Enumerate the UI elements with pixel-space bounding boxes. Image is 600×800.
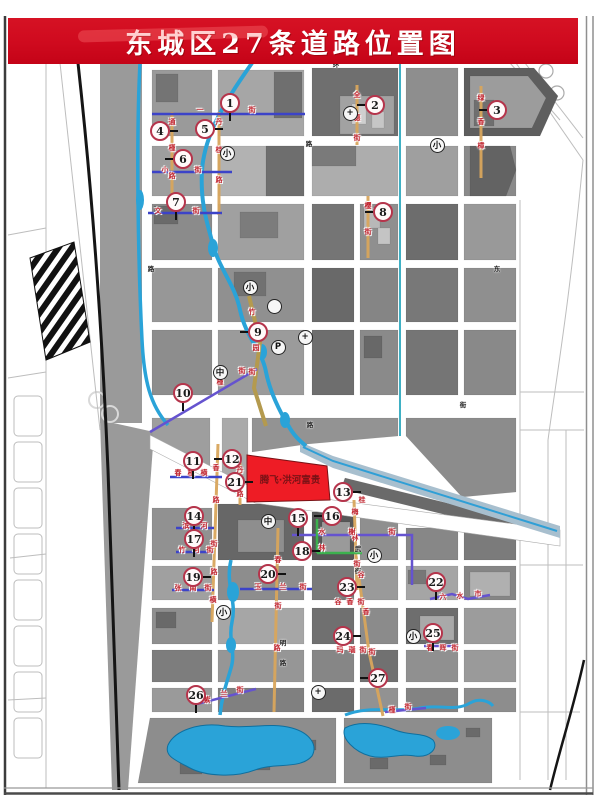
road-name-mark: 街: [365, 227, 372, 237]
marker-tick-4: [170, 130, 178, 132]
road-name-mark: 香: [347, 597, 354, 607]
road-name-mark: 路: [216, 175, 223, 185]
road-name-mark: 梅: [352, 507, 359, 517]
road-name-mark: 园: [253, 343, 260, 353]
road-name-mark: 街: [369, 647, 376, 657]
road-marker-15: 15: [288, 508, 308, 528]
road-name-mark: 路: [211, 567, 218, 577]
road-marker-1: 1: [220, 93, 240, 113]
road-name-mark: 兰: [221, 689, 228, 699]
marker-tick-1: [229, 113, 231, 121]
middle-school-icon: 中: [213, 365, 228, 380]
road-name-mark: 横: [210, 595, 217, 605]
primary-school-icon: 小: [367, 548, 382, 563]
road-name-mark: 张: [175, 583, 182, 593]
hospital-icon: +: [298, 330, 313, 345]
road-name-mark: 街: [249, 367, 256, 377]
road-name-mark: 街: [249, 105, 256, 115]
road-marker-22: 22: [426, 572, 446, 592]
primary-school-icon: 小: [406, 629, 421, 644]
road-name-mark: 香: [363, 607, 370, 617]
middle-school-icon: 中: [261, 514, 276, 529]
road-name-mark: 谷: [358, 570, 365, 580]
road-name-mark: 街: [237, 685, 244, 695]
road-name-mark-black: 路: [280, 657, 287, 667]
road-marker-21: 21: [225, 472, 245, 492]
road-name-mark: 街: [405, 702, 412, 712]
road-marker-10: 10: [173, 383, 193, 403]
road-marker-26: 26: [186, 685, 206, 705]
road-name-mark: 路: [213, 495, 220, 505]
marker-tick-19: [203, 576, 211, 578]
primary-school-icon: 小: [430, 138, 445, 153]
road-name-mark: 一: [197, 105, 204, 115]
road-name-mark: 路: [169, 171, 176, 181]
road-name-mark: 街: [389, 527, 396, 537]
road-name-mark: 春: [275, 555, 282, 565]
road-marker-5: 5: [195, 119, 215, 139]
primary-school-icon: 小: [220, 146, 235, 161]
hospital-icon: +: [311, 685, 326, 700]
road-name-mark: 街: [193, 206, 200, 216]
road-name-mark-black: 路: [307, 419, 314, 429]
marker-tick-22: [435, 592, 437, 600]
road-name-mark: 樟: [478, 141, 485, 151]
marker-tick-25: [432, 643, 434, 651]
road-name-mark: 街: [358, 597, 365, 607]
marker-tick-8: [365, 211, 373, 213]
road-marker-12: 12: [222, 449, 242, 469]
road-name-mark-black: 明: [280, 637, 287, 647]
marker-tick-9: [240, 331, 248, 333]
road-name-mark-black: 武: [355, 543, 362, 553]
road-name-mark: 街: [207, 545, 214, 555]
road-marker-2: 2: [365, 95, 385, 115]
marker-tick-13: [353, 491, 361, 493]
road-name-mark: 街: [239, 366, 246, 376]
marker-tick-7: [175, 212, 177, 220]
road-marker-13: 13: [333, 482, 353, 502]
road-name-mark: 榭: [349, 527, 356, 537]
road-marker-17: 17: [184, 529, 204, 549]
road-name-mark-black: 路: [148, 263, 155, 273]
road-marker-8: 8: [373, 202, 393, 222]
road-name-mark: 街: [354, 133, 361, 143]
road-name-mark: 街: [300, 582, 307, 592]
road-name-mark: 晖: [440, 643, 447, 653]
road-marker-19: 19: [183, 567, 203, 587]
road-name-mark: 街: [354, 559, 361, 569]
road-marker-16: 16: [322, 506, 342, 526]
road-name-mark: 水: [457, 591, 464, 601]
road-marker-9: 9: [248, 322, 268, 342]
road-name-mark: 路: [274, 643, 281, 653]
road-marker-6: 6: [173, 149, 193, 169]
marker-tick-17: [193, 549, 195, 557]
marker-tick-10: [182, 403, 184, 411]
road-name-mark: 丹: [216, 117, 223, 127]
title-banner: 东城区27条道路位置图: [8, 18, 578, 64]
road-marker-18: 18: [292, 541, 312, 561]
road-name-mark: 谷: [335, 597, 342, 607]
road-marker-7: 7: [166, 192, 186, 212]
road-marker-24: 24: [333, 626, 353, 646]
road-name-mark: 兰: [280, 582, 287, 592]
road-name-mark: 香: [478, 117, 485, 127]
road-name-mark: 街: [275, 601, 282, 611]
marker-tick-16: [314, 515, 322, 517]
marker-tick-3: [479, 109, 487, 111]
map-page: 东城区27条道路位置图 腾飞·洪河富贵 12345678910111213141…: [0, 0, 600, 800]
development-parcel-label: 腾飞·洪河富贵: [251, 472, 329, 486]
parking-icon: P: [271, 340, 286, 355]
road-name-mark: 街: [205, 583, 212, 593]
road-name-mark: 桂: [359, 495, 366, 505]
primary-school-icon: 小: [243, 280, 258, 295]
hospital-icon: +: [343, 106, 358, 121]
road-name-mark: 街: [452, 643, 459, 653]
road-name-mark: 小: [162, 165, 169, 175]
road-name-mark: 水: [319, 527, 326, 537]
road-name-mark: 春: [175, 468, 182, 478]
road-marker-23: 23: [337, 577, 357, 597]
road-name-mark: 玛: [337, 645, 344, 655]
road-name-mark-black: 街: [460, 399, 467, 409]
road-name-mark: 竹: [179, 545, 186, 555]
road-name-mark: 全: [354, 90, 361, 100]
road-name-mark: 玉: [255, 582, 262, 592]
marker-tick-5: [215, 128, 223, 130]
map-overlay: 1234567891011121314151617181920212223242…: [0, 0, 600, 800]
marker-tick-12: [214, 458, 222, 460]
road-name-mark: 街: [195, 165, 202, 175]
road-name-mark: 市: [475, 589, 482, 599]
road-marker-4: 4: [150, 121, 170, 141]
road-name-mark: 通: [169, 117, 176, 127]
road-marker-25: 25: [423, 623, 443, 643]
marker-tick-18: [312, 550, 320, 552]
road-name-mark-black: 东: [494, 263, 501, 273]
marker-tick-23: [357, 586, 365, 588]
road-marker-11: 11: [183, 451, 203, 471]
marker-tick-20: [278, 573, 286, 575]
road-marker-3: 3: [487, 100, 507, 120]
marker-tick-27: [360, 677, 368, 679]
primary-school-icon: 小: [216, 605, 231, 620]
road-marker-27: 27: [368, 668, 388, 688]
road-name-mark: 横: [201, 468, 208, 478]
road-name-mark: 香: [213, 463, 220, 473]
road-name-mark: 瑙: [349, 645, 356, 655]
road-name-mark: 街: [360, 645, 367, 655]
road-marker-20: 20: [258, 564, 278, 584]
circle-icon: [267, 299, 282, 314]
road-name-mark: 竹: [249, 307, 256, 317]
marker-tick-26: [195, 705, 197, 713]
road-name-mark: 樱: [365, 201, 372, 211]
road-name-mark: 文: [155, 206, 162, 216]
marker-tick-2: [357, 104, 365, 106]
marker-tick-6: [165, 158, 173, 160]
marker-tick-24: [353, 635, 361, 637]
road-name-mark: 六: [440, 592, 447, 602]
road-name-mark-black: 路: [306, 138, 313, 148]
road-name-mark: 槿: [389, 705, 396, 715]
marker-tick-11: [192, 471, 194, 479]
road-name-mark: 绿: [478, 93, 485, 103]
road-marker-14: 14: [184, 506, 204, 526]
marker-tick-15: [297, 528, 299, 536]
